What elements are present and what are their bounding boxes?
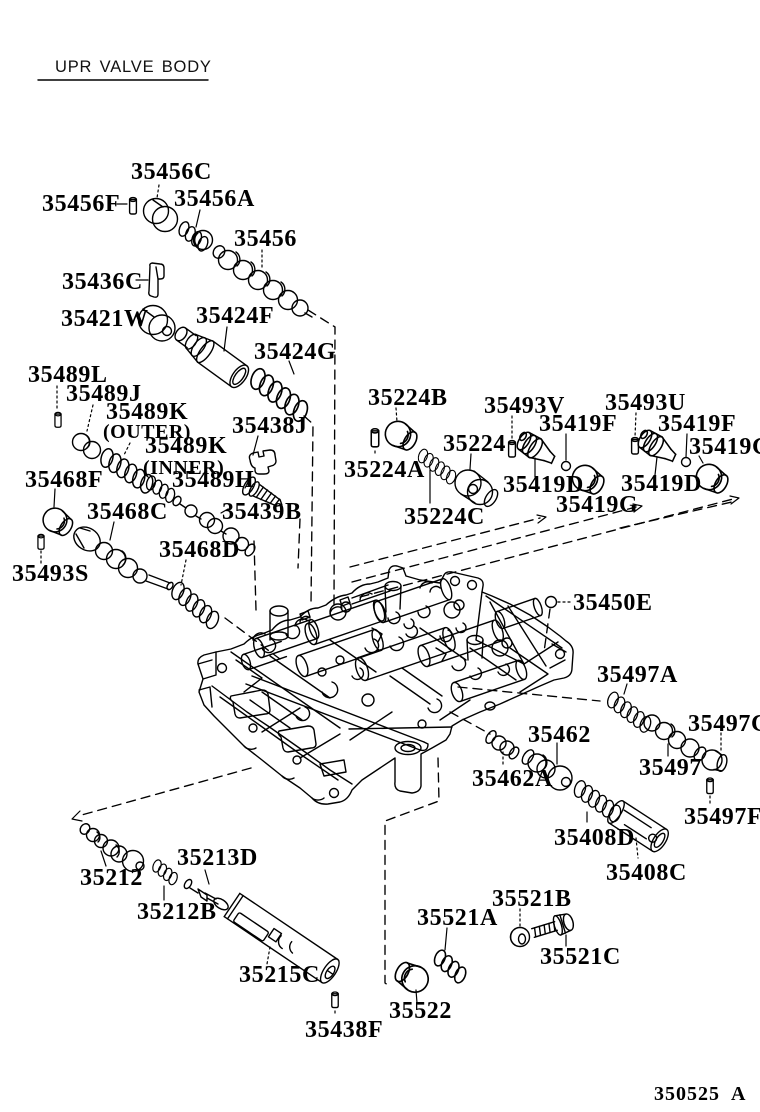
svg-text:UPR VALVE BODY: UPR VALVE BODY <box>55 58 212 76</box>
svg-text:35456F: 35456F <box>42 191 120 217</box>
svg-text:35215C: 35215C <box>239 962 320 988</box>
svg-text:35224C: 35224C <box>404 504 485 530</box>
svg-text:35489H: 35489H <box>172 467 254 493</box>
svg-text:35439B: 35439B <box>222 499 302 525</box>
svg-text:35224: 35224 <box>443 431 506 457</box>
svg-text:35213D: 35213D <box>177 845 258 871</box>
svg-text:35419D: 35419D <box>621 471 702 497</box>
svg-text:35521A: 35521A <box>417 905 498 931</box>
svg-text:35462A: 35462A <box>472 766 553 792</box>
svg-text:35456: 35456 <box>234 226 297 252</box>
svg-text:35489K: 35489K <box>145 433 227 459</box>
svg-text:35224B: 35224B <box>368 385 448 411</box>
svg-text:35468C: 35468C <box>87 499 168 525</box>
svg-text:35419G: 35419G <box>689 434 760 460</box>
svg-text:35521C: 35521C <box>540 944 621 970</box>
svg-text:35462: 35462 <box>528 722 591 748</box>
svg-text:35493S: 35493S <box>12 561 89 587</box>
svg-text:35438F: 35438F <box>305 1017 383 1043</box>
svg-text:35521B: 35521B <box>492 886 572 912</box>
svg-text:35438J: 35438J <box>232 413 308 439</box>
svg-text:35436C: 35436C <box>62 269 143 295</box>
svg-text:35421W: 35421W <box>61 306 149 332</box>
svg-text:35456A: 35456A <box>174 186 255 212</box>
svg-text:35497F: 35497F <box>684 804 760 830</box>
svg-text:35450E: 35450E <box>573 590 653 616</box>
svg-text:35212B: 35212B <box>137 899 217 925</box>
svg-text:35468F: 35468F <box>25 467 103 493</box>
svg-text:35212: 35212 <box>80 865 143 891</box>
svg-text:35424F: 35424F <box>196 303 274 329</box>
svg-text:35522: 35522 <box>389 998 452 1024</box>
svg-text:35408D: 35408D <box>554 825 635 851</box>
svg-text:35456C: 35456C <box>131 159 212 185</box>
svg-text:35497A: 35497A <box>597 662 678 688</box>
svg-text:350525 A: 350525 A <box>654 1083 746 1105</box>
svg-text:35468D: 35468D <box>159 537 240 563</box>
svg-text:35424G: 35424G <box>254 339 336 365</box>
svg-text:35224A: 35224A <box>344 457 425 483</box>
svg-text:35408C: 35408C <box>606 860 687 886</box>
svg-text:35497: 35497 <box>639 755 702 781</box>
svg-text:35497C: 35497C <box>688 711 760 737</box>
